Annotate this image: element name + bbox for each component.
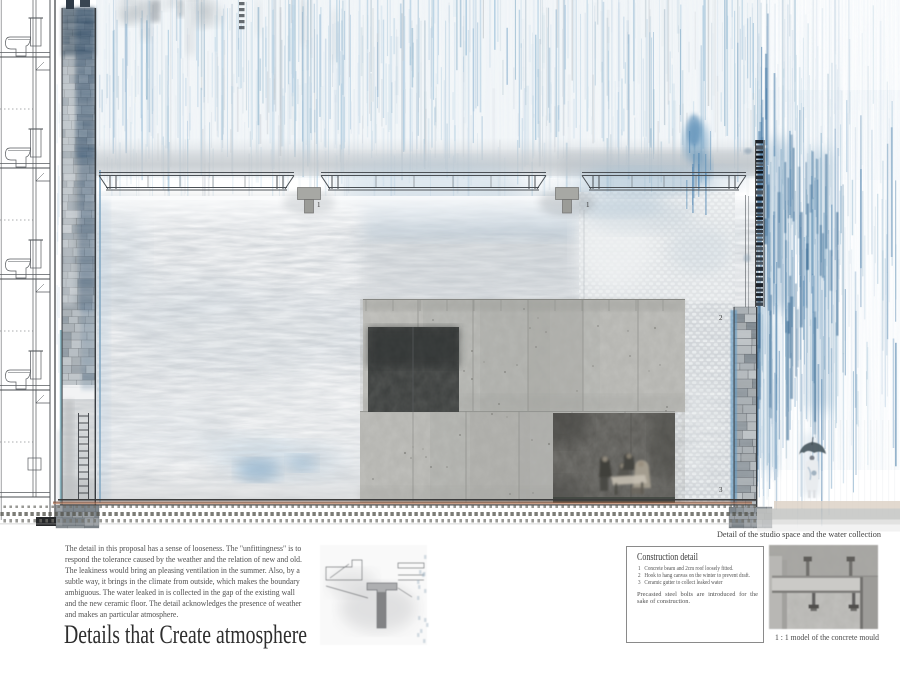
svg-text:3: 3: [719, 486, 723, 494]
svg-text:1: 1: [586, 201, 590, 209]
svg-text:1: 1: [317, 201, 321, 209]
svg-text:2: 2: [719, 314, 723, 322]
